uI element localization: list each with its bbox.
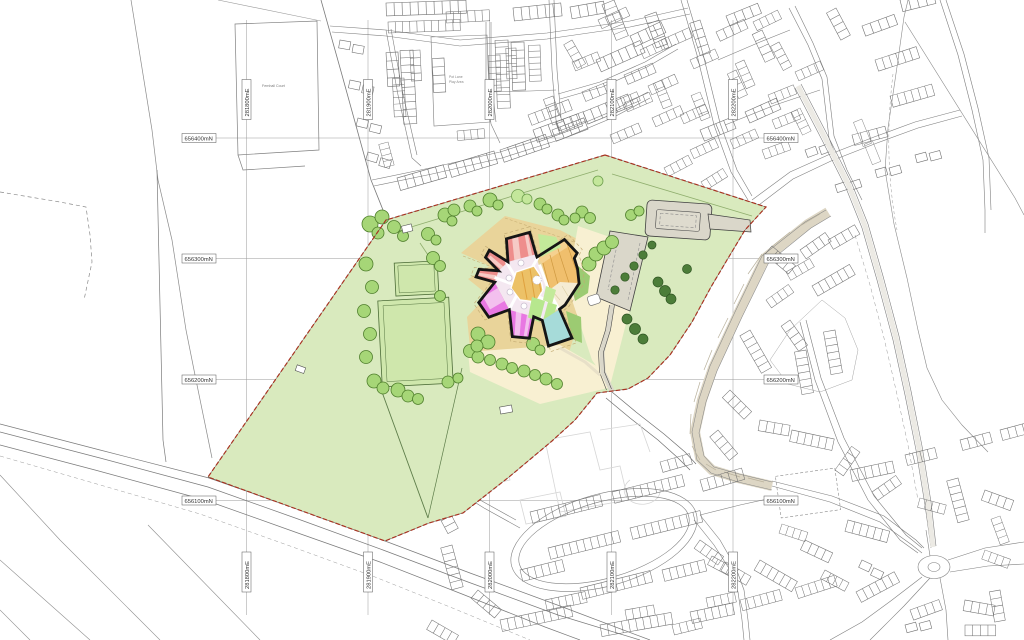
svg-text:Play Area: Play Area bbox=[449, 80, 464, 84]
svg-text:281800mE: 281800mE bbox=[245, 561, 251, 589]
svg-text:Fernhall Court: Fernhall Court bbox=[262, 84, 285, 88]
svg-text:282100mE: 282100mE bbox=[610, 88, 616, 116]
svg-text:656400mN: 656400mN bbox=[185, 137, 213, 143]
svg-text:282200mE: 282200mE bbox=[732, 561, 738, 589]
svg-text:281900mE: 281900mE bbox=[367, 88, 373, 116]
svg-text:656300mN: 656300mN bbox=[185, 257, 213, 263]
svg-text:282200mE: 282200mE bbox=[732, 88, 738, 116]
svg-text:656200mN: 656200mN bbox=[185, 378, 213, 384]
svg-text:282000mE: 282000mE bbox=[488, 88, 494, 116]
svg-text:656100mN: 656100mN bbox=[767, 499, 795, 505]
svg-text:282100mE: 282100mE bbox=[610, 561, 616, 589]
svg-text:282000mE: 282000mE bbox=[488, 561, 494, 589]
svg-text:656400mN: 656400mN bbox=[767, 137, 795, 143]
svg-text:656100mN: 656100mN bbox=[185, 499, 213, 505]
svg-text:656300mN: 656300mN bbox=[767, 257, 795, 263]
svg-text:281800mE: 281800mE bbox=[245, 88, 251, 116]
svg-text:656200mN: 656200mN bbox=[767, 378, 795, 384]
svg-text:Pot Lane: Pot Lane bbox=[449, 75, 463, 79]
svg-text:281900mE: 281900mE bbox=[367, 561, 373, 589]
